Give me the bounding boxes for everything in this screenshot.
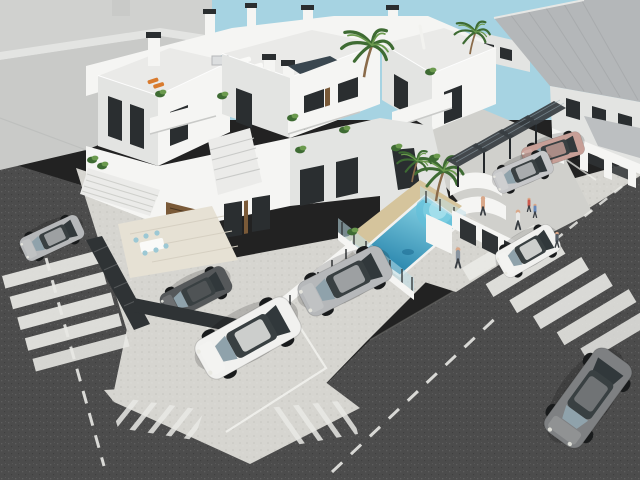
render-canvas: Modern white Mediterranean apartment com… [0, 0, 640, 480]
architectural-render: Modern white Mediterranean apartment com… [0, 0, 640, 480]
gray-building-chimney [112, 0, 130, 16]
